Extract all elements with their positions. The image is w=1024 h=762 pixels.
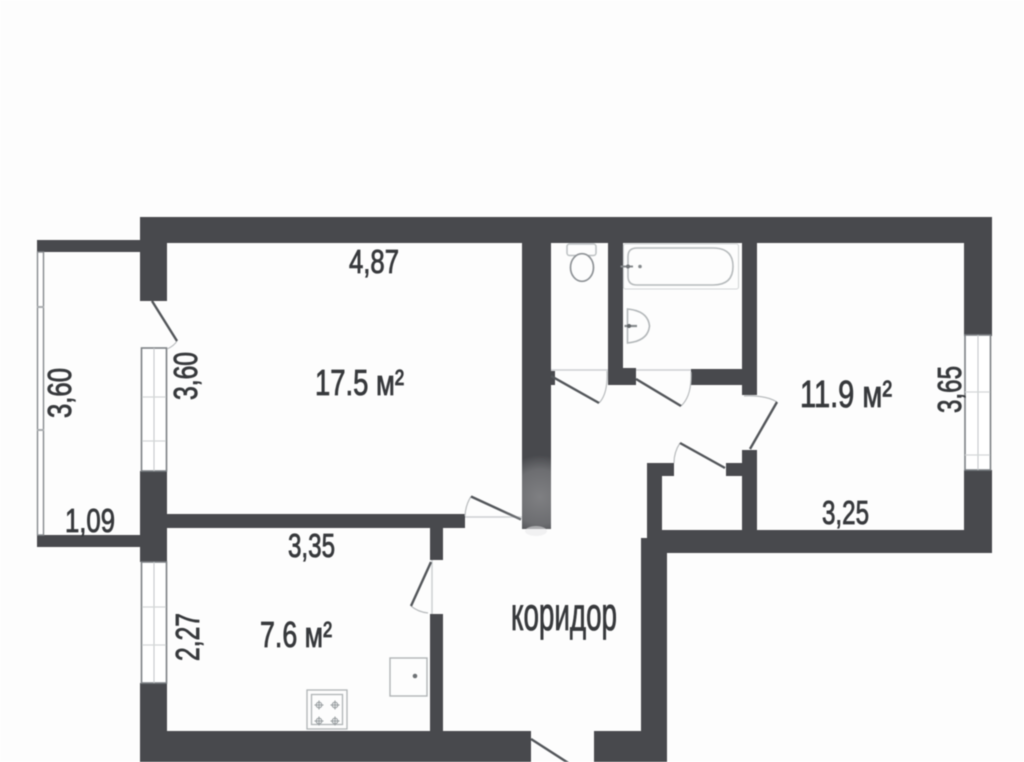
svg-text:17.5 м²: 17.5 м² (315, 362, 404, 403)
svg-text:коридор: коридор (511, 588, 617, 640)
svg-text:1,09: 1,09 (65, 502, 115, 539)
svg-text:4,87: 4,87 (349, 243, 399, 280)
svg-text:11.9 м²: 11.9 м² (800, 374, 892, 416)
svg-text:3,60: 3,60 (41, 368, 78, 418)
svg-text:3,25: 3,25 (822, 494, 869, 531)
svg-text:3,65: 3,65 (931, 366, 968, 413)
svg-text:3,35: 3,35 (288, 527, 335, 564)
svg-text:3,60: 3,60 (167, 352, 204, 400)
svg-text:2,27: 2,27 (169, 613, 206, 661)
svg-text:7.6 м²: 7.6 м² (260, 614, 332, 655)
